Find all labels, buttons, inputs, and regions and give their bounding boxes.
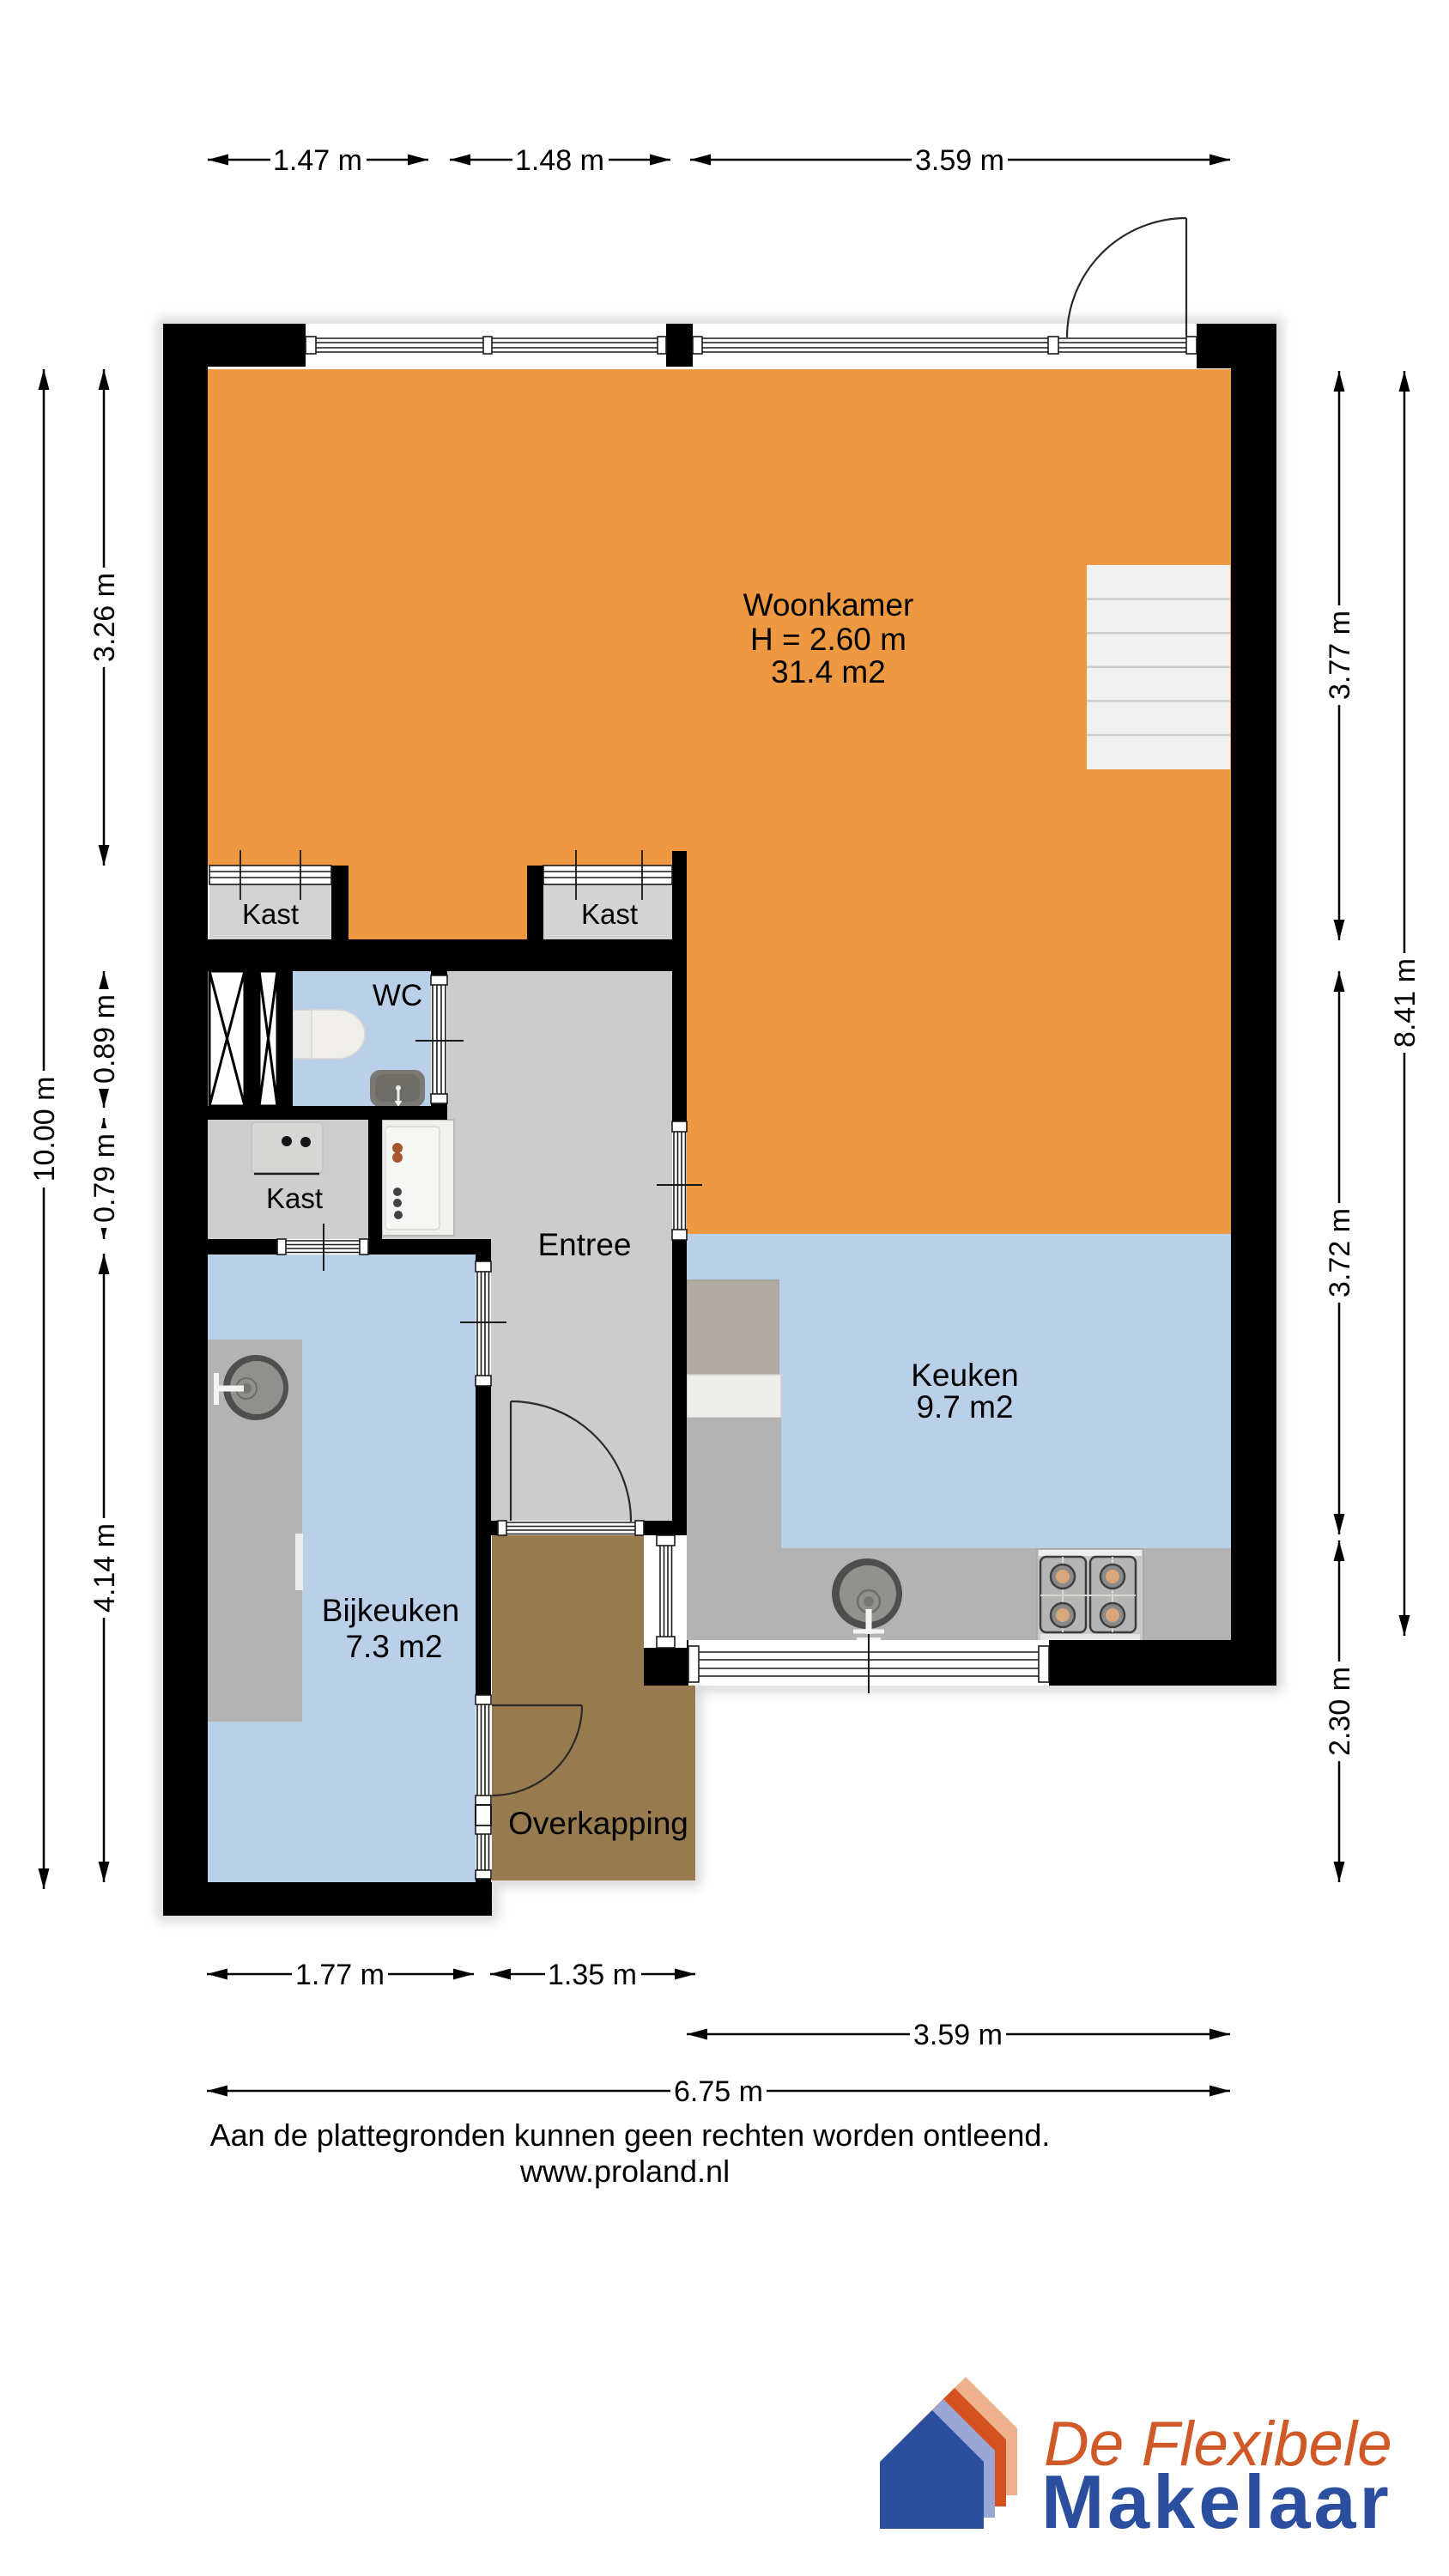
svg-text:3.59 m: 3.59 m — [913, 2019, 1003, 2051]
svg-text:Makelaar: Makelaar — [1041, 2459, 1392, 2544]
svg-text:1.77 m: 1.77 m — [295, 1959, 385, 1991]
svg-text:Aan de plattegronden kunnen ge: Aan de plattegronden kunnen geen rechten… — [210, 2117, 1051, 2153]
svg-text:Overkapping: Overkapping — [508, 1806, 688, 1841]
svg-text:www.proland.nl: www.proland.nl — [519, 2154, 730, 2189]
svg-text:Kast: Kast — [242, 898, 299, 930]
svg-text:1.35 m: 1.35 m — [548, 1959, 637, 1991]
svg-text:8.41 m: 8.41 m — [1389, 958, 1422, 1048]
svg-text:1.47 m: 1.47 m — [273, 144, 362, 177]
svg-text:Entree: Entree — [537, 1227, 631, 1262]
svg-text:1.48 m: 1.48 m — [515, 144, 604, 177]
svg-text:Kast: Kast — [266, 1182, 323, 1214]
svg-text:3.72 m: 3.72 m — [1324, 1208, 1356, 1297]
svg-text:Bijkeuken: Bijkeuken — [322, 1593, 459, 1628]
svg-text:H = 2.60 m: H = 2.60 m — [750, 622, 906, 657]
svg-text:9.7 m2: 9.7 m2 — [916, 1389, 1013, 1425]
svg-text:3.26 m: 3.26 m — [88, 573, 121, 662]
svg-text:0.89 m: 0.89 m — [88, 994, 121, 1084]
svg-text:2.30 m: 2.30 m — [1324, 1667, 1356, 1756]
svg-text:4.14 m: 4.14 m — [88, 1523, 121, 1613]
svg-text:Woonkamer: Woonkamer — [743, 587, 914, 623]
svg-text:Kast: Kast — [581, 898, 638, 930]
svg-text:0.79 m: 0.79 m — [88, 1133, 121, 1223]
svg-text:Keuken: Keuken — [911, 1358, 1019, 1393]
svg-text:10.00 m: 10.00 m — [28, 1077, 61, 1182]
svg-text:7.3 m2: 7.3 m2 — [345, 1629, 442, 1664]
svg-text:6.75 m: 6.75 m — [674, 2075, 763, 2108]
svg-text:3.77 m: 3.77 m — [1324, 611, 1356, 700]
svg-text:31.4 m2: 31.4 m2 — [771, 654, 886, 690]
svg-text:WC: WC — [373, 979, 422, 1012]
svg-text:3.59 m: 3.59 m — [915, 144, 1004, 177]
